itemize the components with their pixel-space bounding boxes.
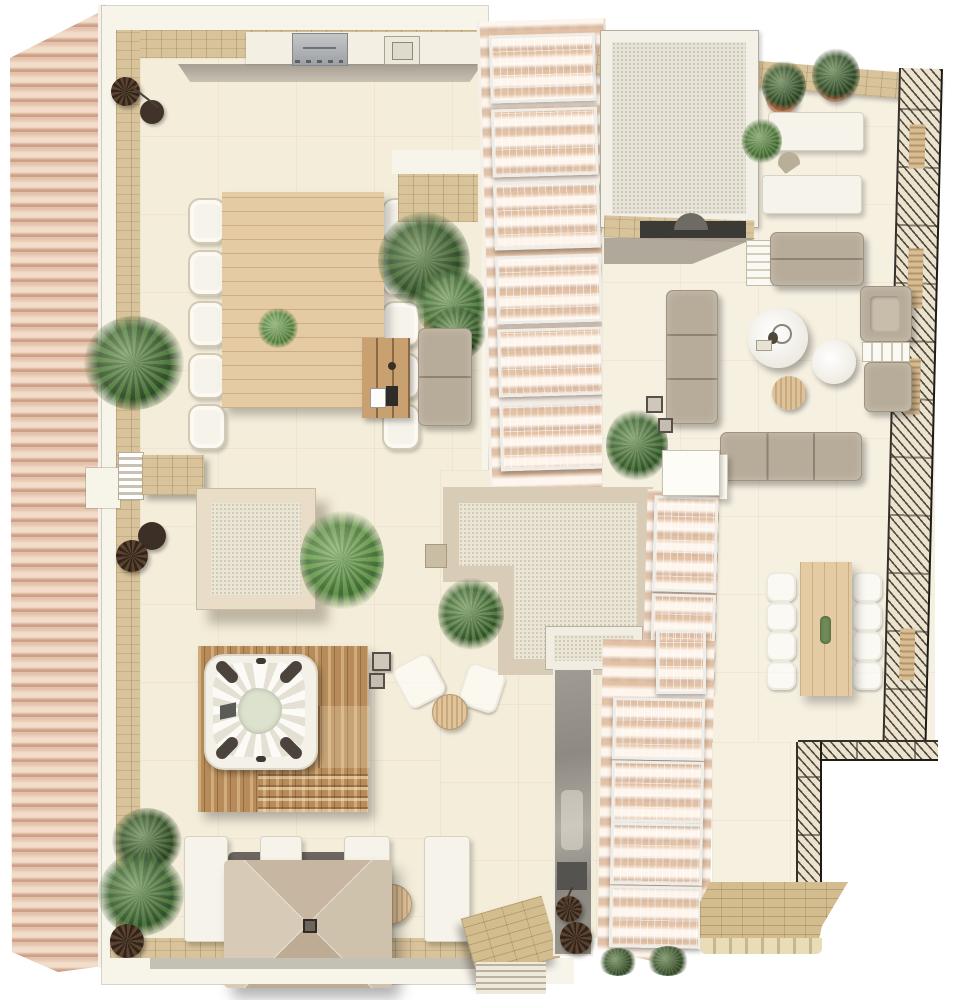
plant-small-toploungers (742, 118, 782, 164)
solar-array-bottom (609, 697, 703, 949)
bench-stone-ledge (142, 455, 204, 495)
dining-chair (188, 301, 226, 347)
dried-plant-pot-1 (556, 896, 582, 922)
roof-window-dark-patch (557, 862, 587, 890)
dining8-chairs-right (852, 572, 882, 690)
roof-window-interior-hint (561, 790, 583, 850)
sink-basin (392, 42, 413, 60)
shrub-roof-bottom-1 (598, 948, 638, 976)
bench-slats (118, 452, 144, 500)
speaker-box-right (646, 396, 663, 413)
daybed (770, 232, 864, 286)
hot-tub (204, 654, 318, 770)
hot-tub-knob (256, 658, 266, 664)
solar-array-top (489, 33, 607, 472)
dining-chair (188, 353, 226, 399)
picnic-table-card-dark (386, 386, 398, 406)
armchair-seat (870, 296, 900, 332)
stool-round-wood (772, 376, 806, 410)
parasol-hub (303, 919, 317, 933)
cypress-tree-2 (812, 48, 860, 102)
stone-landing (700, 882, 848, 944)
dining8-centerpiece (820, 616, 831, 644)
skylight-center-vent (425, 544, 447, 568)
solar-panel-partial (656, 630, 706, 694)
bottom-wall-shadow (150, 958, 480, 969)
armchair-right (860, 286, 912, 342)
palm-left-wall (84, 316, 184, 410)
skylight-big-pane (612, 42, 746, 214)
wire-dining-chair (852, 661, 882, 691)
railing-planter-box (909, 124, 926, 168)
picnic-table (362, 338, 410, 418)
picnic-table-card (370, 388, 386, 408)
coffee-table-book (756, 340, 772, 351)
stool-wicker-midleft (116, 540, 148, 572)
sofa-vertical-3seat (666, 290, 718, 424)
side-table-round-wood (432, 694, 468, 730)
dining-table-10 (222, 192, 384, 408)
solar-panel (610, 823, 703, 887)
wire-dining-chair (852, 631, 882, 661)
kitchen-back-ledge (108, 8, 488, 30)
wire-dining-chair (766, 631, 796, 661)
wire-dining-chair (766, 572, 796, 602)
wire-dining-chair (852, 602, 882, 632)
roof-box-white (662, 450, 720, 496)
table-centerpiece-plant (258, 308, 298, 348)
deck-step-right (318, 706, 370, 768)
coffee-table-round-large (748, 308, 808, 368)
solar-panel (497, 327, 605, 398)
solar-panel (495, 253, 603, 324)
ottoman-right (864, 362, 912, 412)
sun-lounger-top-2 (762, 175, 862, 214)
sofa-horizontal-3seat (720, 432, 862, 481)
wire-dining-chair (852, 572, 882, 602)
palm-bottomleft (98, 852, 184, 936)
stairwell-opening (640, 221, 746, 238)
grill-knobs (295, 60, 343, 63)
dining-chair (188, 404, 226, 450)
sun-lounger-top-1 (768, 112, 864, 151)
solar-panel (489, 33, 597, 104)
solar-roof-top (476, 18, 618, 491)
kitchen-counter (246, 32, 482, 64)
solar-panel (609, 885, 702, 949)
stone-landing-edge (700, 938, 822, 954)
solar-panel (499, 400, 607, 471)
dining-chair (188, 198, 226, 244)
skylight-square-left-pane (211, 503, 301, 595)
railing-planter-box (899, 628, 915, 680)
wall-jut-top (392, 150, 482, 174)
solar-panel (612, 697, 705, 761)
floor-plan-canvas (0, 0, 955, 1000)
loveseat (418, 328, 472, 426)
balustrade-walkway (796, 742, 822, 894)
coffee-table-round-small (812, 340, 856, 384)
solar-panel (652, 495, 718, 593)
dining-chair (188, 250, 226, 296)
solar-panel (611, 760, 704, 824)
shrub-roof-bottom-2 (646, 946, 690, 976)
solar-panel (491, 106, 599, 177)
solar-panel (493, 180, 601, 251)
dining8-chairs-left (766, 572, 796, 690)
deck-steps (258, 768, 368, 812)
sink-icon (384, 36, 420, 65)
hot-tub-knob (256, 756, 266, 762)
armchair-slat-table (862, 342, 910, 362)
palm-skylight (438, 578, 504, 650)
cypress-tree-1 (762, 60, 806, 112)
wire-dining-chair (766, 602, 796, 632)
picnic-table-cup (388, 362, 396, 370)
kitchen-counter-shadow (178, 64, 482, 82)
walkway-floor (712, 742, 798, 892)
dining10-chairs-left (188, 198, 224, 450)
skylight-big (600, 30, 759, 228)
grill-handle (303, 47, 336, 49)
dried-plant-pot-2 (560, 922, 592, 954)
speaker-box-right-small (658, 418, 673, 433)
skylight-square-left (196, 488, 316, 610)
sun-lounger-bottom-1 (184, 836, 228, 942)
ramp-steps (476, 962, 546, 994)
wall-jut-left (86, 468, 120, 508)
speaker-box (372, 652, 391, 671)
speaker-box-small (369, 673, 385, 689)
grill-icon (292, 33, 348, 66)
wire-dining-chair (766, 661, 796, 691)
pot-bottomleft (110, 924, 144, 958)
broadleaf-plant (300, 508, 384, 612)
